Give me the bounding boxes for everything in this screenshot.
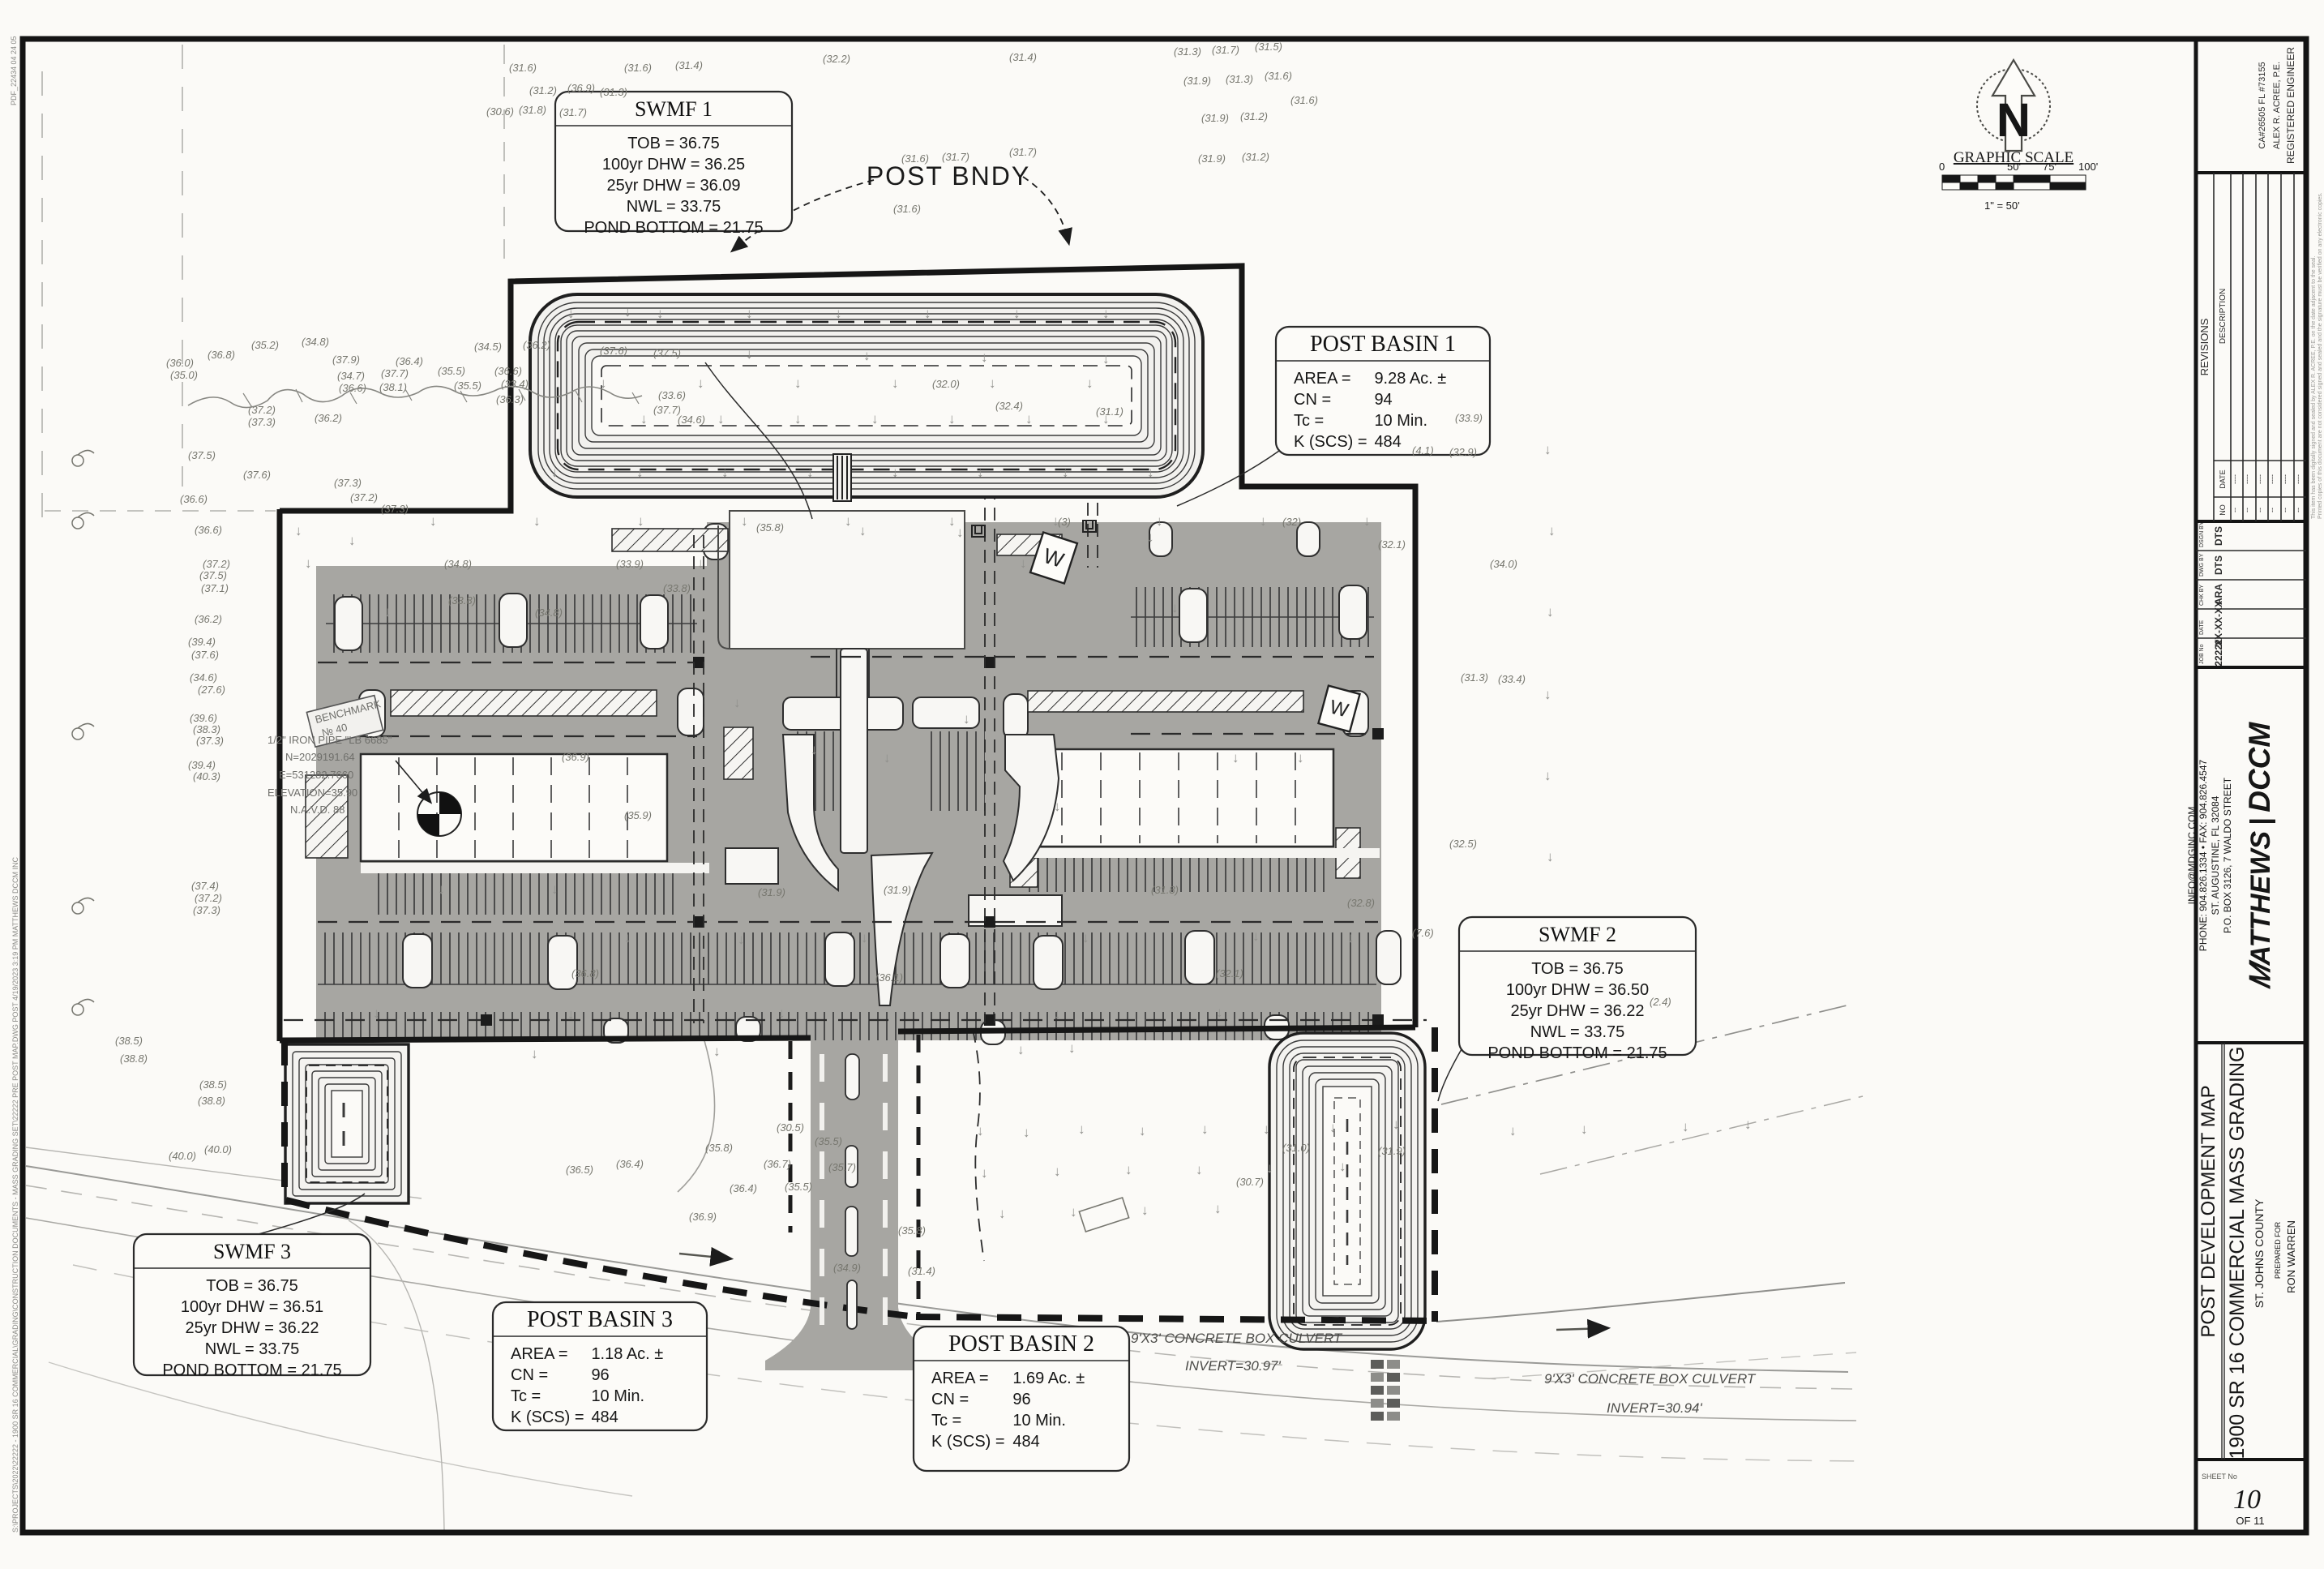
- svg-text:(37.7): (37.7): [381, 367, 409, 379]
- svg-text:↓: ↓: [1329, 1120, 1337, 1135]
- svg-text:↓: ↓: [811, 742, 818, 757]
- svg-text:↓: ↓: [1125, 1162, 1132, 1177]
- svg-text:(37.3): (37.3): [248, 416, 276, 428]
- svg-text:ELEVATION=35.90: ELEVATION=35.90: [267, 787, 357, 799]
- svg-text:↓: ↓: [861, 930, 868, 945]
- svg-text:(32.5): (32.5): [1449, 838, 1477, 850]
- svg-text:(38.3): (38.3): [193, 723, 220, 735]
- svg-text:(37.6): (37.6): [600, 345, 627, 357]
- svg-text:22222: 22222: [2213, 639, 2224, 667]
- svg-text:(38.8): (38.8): [120, 1052, 148, 1065]
- svg-text:(37.5): (37.5): [188, 449, 216, 461]
- svg-text:↓: ↓: [778, 1005, 785, 1021]
- svg-text:(31.4): (31.4): [675, 59, 703, 71]
- svg-text:(37.5): (37.5): [653, 347, 681, 359]
- svg-text:(31.9): (31.9): [1201, 112, 1229, 124]
- svg-text:CA#26505 FL #73155: CA#26505 FL #73155: [2258, 62, 2267, 148]
- svg-text:CN =: CN =: [1294, 391, 1331, 409]
- svg-text:↓: ↓: [871, 411, 879, 427]
- svg-text:(40.0): (40.0): [204, 1143, 232, 1155]
- svg-text:(4.1): (4.1): [1412, 444, 1434, 457]
- svg-text:(35.8): (35.8): [756, 521, 784, 534]
- svg-text:N.A.V.D. 88: N.A.V.D. 88: [290, 804, 345, 816]
- svg-text:--: --: [2243, 508, 2251, 512]
- svg-text:RON WARREN: RON WARREN: [2285, 1220, 2297, 1293]
- svg-text:(37.5): (37.5): [199, 569, 227, 581]
- svg-text:(31.6): (31.6): [1265, 70, 1292, 82]
- svg-text:(3): (3): [1058, 516, 1071, 528]
- svg-text:PREPARED FOR: PREPARED FOR: [2274, 1221, 2282, 1279]
- svg-text:↓: ↓: [1216, 1005, 1223, 1020]
- svg-text:NWL = 33.75: NWL = 33.75: [1530, 1023, 1625, 1041]
- svg-text:↓: ↓: [1052, 513, 1059, 529]
- svg-text:----: ----: [2231, 474, 2239, 484]
- svg-text:(36.6): (36.6): [494, 365, 522, 377]
- svg-text:(33.4): (33.4): [1498, 673, 1526, 685]
- svg-text:(31.3): (31.3): [600, 86, 627, 98]
- svg-text:(31.7): (31.7): [1212, 44, 1239, 56]
- svg-text:(31.2): (31.2): [529, 84, 557, 96]
- svg-text:(35.5): (35.5): [815, 1135, 842, 1147]
- svg-text:↓: ↓: [948, 411, 956, 427]
- svg-text:(33.9): (33.9): [1455, 412, 1483, 424]
- svg-text:↓: ↓: [835, 306, 842, 321]
- svg-text:(30.7): (30.7): [1236, 1176, 1264, 1188]
- svg-text:(37.2): (37.2): [248, 404, 276, 416]
- svg-text:(39.6): (39.6): [190, 712, 217, 724]
- svg-text:POND BOTTOM = 21.75: POND BOTTOM = 21.75: [1487, 1044, 1667, 1062]
- svg-text:(36.6): (36.6): [180, 493, 208, 505]
- svg-text:↓: ↓: [1082, 930, 1089, 945]
- svg-text:(36.2): (36.2): [315, 412, 342, 424]
- svg-text:P.O. BOX 3126, 7 WALDO STREET: P.O. BOX 3126, 7 WALDO STREET: [2222, 777, 2233, 933]
- svg-text:(30.6): (30.6): [486, 105, 514, 118]
- svg-text:(34.8): (34.8): [302, 336, 329, 348]
- svg-text:↓: ↓: [1214, 1201, 1222, 1216]
- svg-text:REGISTERED ENGINEER: REGISTERED ENGINEER: [2285, 47, 2296, 164]
- svg-text:NWL = 33.75: NWL = 33.75: [627, 198, 721, 216]
- svg-text:↓: ↓: [1025, 411, 1033, 427]
- svg-text:----: ----: [2256, 474, 2264, 484]
- svg-text:↓: ↓: [863, 348, 871, 363]
- svg-text:(36.0): (36.0): [166, 357, 194, 369]
- svg-text:(31.3): (31.3): [1461, 671, 1488, 684]
- svg-text:TOB = 36.75: TOB = 36.75: [1531, 960, 1624, 978]
- svg-text:↓: ↓: [713, 1044, 721, 1059]
- svg-text:↓: ↓: [697, 555, 704, 571]
- svg-text:↓: ↓: [1013, 306, 1021, 321]
- svg-text:(36.7): (36.7): [764, 1158, 791, 1170]
- svg-text:NO: NO: [2219, 504, 2227, 516]
- svg-text:484: 484: [1374, 433, 1401, 451]
- svg-text:(34.8): (34.8): [444, 558, 472, 570]
- svg-text:↓: ↓: [807, 465, 814, 480]
- svg-text:(38.5): (38.5): [199, 1078, 227, 1091]
- svg-text:(31.6): (31.6): [509, 62, 537, 74]
- svg-text:PDF_22434 04 24 05: PDF_22434 04 24 05: [10, 36, 18, 105]
- svg-text:↓: ↓: [1544, 442, 1551, 457]
- svg-text:Printed copies of this documen: Printed copies of this document are not …: [2318, 192, 2323, 519]
- svg-text:96: 96: [591, 1366, 609, 1384]
- svg-text:(38.1): (38.1): [379, 381, 407, 393]
- svg-text:↓: ↓: [430, 513, 437, 529]
- svg-text:(40.3): (40.3): [193, 770, 220, 782]
- svg-text:↓: ↓: [1347, 930, 1355, 945]
- svg-text:(37.3): (37.3): [196, 735, 224, 747]
- svg-text:↓: ↓: [1266, 1160, 1273, 1176]
- svg-text:↓: ↓: [794, 375, 802, 391]
- svg-text:↓: ↓: [981, 1165, 988, 1181]
- svg-text:DTS: DTS: [2213, 526, 2224, 546]
- svg-text:(36.6): (36.6): [195, 524, 222, 536]
- svg-text:(36.2): (36.2): [523, 339, 550, 351]
- svg-text:↓: ↓: [295, 523, 302, 538]
- svg-text:(36.9): (36.9): [689, 1211, 717, 1223]
- svg-text:25yr DHW = 36.09: 25yr DHW = 36.09: [606, 177, 740, 195]
- svg-text:(37.3): (37.3): [334, 477, 362, 489]
- svg-text:↓: ↓: [305, 555, 312, 571]
- svg-text:↓: ↓: [734, 695, 741, 710]
- svg-text:96: 96: [1012, 1391, 1030, 1408]
- svg-text:100yr DHW = 36.50: 100yr DHW = 36.50: [1506, 981, 1649, 999]
- svg-text:↓: ↓: [657, 306, 664, 321]
- svg-text:(35.8): (35.8): [705, 1142, 733, 1154]
- svg-text:9.28 Ac. ±: 9.28 Ac. ±: [1374, 370, 1446, 388]
- svg-text:1/2" IRON PIPE "LB 6685": 1/2" IRON PIPE "LB 6685": [267, 734, 392, 746]
- svg-text:100yr DHW = 36.51: 100yr DHW = 36.51: [181, 1298, 323, 1316]
- svg-text:↓: ↓: [892, 375, 899, 391]
- svg-text:↓: ↓: [977, 1123, 984, 1138]
- svg-text:↓: ↓: [746, 346, 753, 362]
- svg-text:↓: ↓: [1263, 1121, 1270, 1137]
- svg-text:(35.9): (35.9): [624, 809, 652, 821]
- svg-text:----: ----: [2243, 474, 2251, 484]
- svg-text:DESCRIPTION: DESCRIPTION: [2219, 289, 2228, 344]
- svg-text:↓: ↓: [384, 604, 392, 619]
- svg-text:(31.7): (31.7): [559, 106, 587, 118]
- svg-text:(31.1): (31.1): [1096, 405, 1123, 418]
- svg-text:REVISIONS: REVISIONS: [2198, 318, 2211, 375]
- svg-text:--: --: [2268, 508, 2276, 512]
- svg-text:(32.1): (32.1): [1378, 538, 1406, 551]
- svg-text:Tc =: Tc =: [511, 1387, 541, 1405]
- svg-text:INVERT=30.94': INVERT=30.94': [1607, 1400, 1703, 1416]
- svg-text:↓: ↓: [989, 375, 996, 391]
- svg-text:↓: ↓: [567, 1006, 575, 1022]
- svg-text:POND BOTTOM = 21.75: POND BOTTOM = 21.75: [584, 219, 763, 237]
- svg-text:↓: ↓: [533, 513, 541, 529]
- svg-text:(35.2): (35.2): [251, 339, 279, 351]
- svg-text:(32.0): (32.0): [932, 378, 960, 390]
- svg-text:(31.4): (31.4): [908, 1265, 935, 1277]
- svg-text:INVERT=30.97': INVERT=30.97': [1185, 1358, 1282, 1374]
- svg-text:(31.3): (31.3): [1174, 45, 1201, 58]
- svg-text:(31.3): (31.3): [1226, 73, 1253, 85]
- svg-text:↓: ↓: [1682, 1119, 1689, 1134]
- svg-text:↓: ↓: [845, 513, 852, 529]
- svg-text:(31.9): (31.9): [884, 884, 911, 896]
- svg-text:POST BASIN 1: POST BASIN 1: [1310, 332, 1456, 357]
- svg-text:(31.6): (31.6): [1290, 94, 1318, 106]
- svg-text:↓: ↓: [1547, 849, 1554, 864]
- svg-text:↓: ↓: [551, 465, 559, 480]
- svg-text:1.69 Ac. ±: 1.69 Ac. ±: [1012, 1370, 1085, 1387]
- svg-text:--: --: [2256, 508, 2264, 512]
- svg-text:SWMF 3: SWMF 3: [213, 1240, 291, 1263]
- svg-text:↓: ↓: [1147, 465, 1154, 480]
- svg-text:(34.9): (34.9): [833, 1262, 861, 1274]
- svg-text:(39.4): (39.4): [188, 759, 216, 771]
- svg-text:↓: ↓: [1086, 375, 1094, 391]
- svg-text:ST. AUGUSTINE, FL 32084: ST. AUGUSTINE, FL 32084: [2210, 795, 2221, 915]
- svg-text:↓: ↓: [1102, 306, 1110, 321]
- svg-text:JOB No: JOB No: [2199, 644, 2205, 664]
- svg-text:(34.6): (34.6): [678, 414, 705, 426]
- svg-text:(37.3): (37.3): [193, 904, 220, 916]
- svg-text:----: ----: [2281, 474, 2289, 484]
- svg-text:DSGN BY: DSGN BY: [2199, 521, 2205, 547]
- svg-text:NWL = 33.75: NWL = 33.75: [205, 1340, 300, 1358]
- svg-text:INFO@MDGINC.COM: INFO@MDGINC.COM: [2186, 807, 2198, 905]
- svg-text:↓: ↓: [1102, 351, 1110, 367]
- svg-text:TOB = 36.75: TOB = 36.75: [206, 1277, 298, 1295]
- svg-text:↓: ↓: [1260, 513, 1267, 529]
- svg-text:↓: ↓: [697, 375, 704, 391]
- svg-text:↓: ↓: [981, 349, 988, 365]
- svg-text:(31.2): (31.2): [1242, 151, 1269, 163]
- svg-text:(37.2): (37.2): [203, 558, 230, 570]
- svg-text:(36.9): (36.9): [567, 82, 595, 94]
- svg-text:↓: ↓: [1509, 1123, 1517, 1138]
- svg-text:(2.4): (2.4): [1650, 996, 1671, 1008]
- svg-text:0: 0: [1939, 161, 1945, 173]
- svg-text:(36.8): (36.8): [208, 349, 235, 361]
- svg-text:10 Min.: 10 Min.: [591, 1387, 644, 1405]
- svg-text:↓: ↓: [1156, 513, 1163, 529]
- svg-text:↓: ↓: [1393, 1117, 1400, 1132]
- svg-text:----: ----: [2294, 474, 2302, 484]
- svg-text:(34.0): (34.0): [1490, 558, 1517, 570]
- svg-text:↓: ↓: [924, 306, 931, 321]
- svg-text:↓: ↓: [884, 750, 891, 765]
- svg-text:↓: ↓: [717, 411, 725, 427]
- svg-text:(31.8): (31.8): [519, 104, 546, 116]
- svg-text:DATE: DATE: [2219, 469, 2227, 488]
- svg-text:(31.9): (31.9): [758, 886, 785, 898]
- svg-text:(36.4): (36.4): [730, 1182, 757, 1194]
- svg-text:1" = 50': 1" = 50': [1984, 199, 2020, 212]
- svg-text:94: 94: [1374, 391, 1392, 409]
- svg-text:1900 SR 16 COMMERCIAL MASS GRA: 1900 SR 16 COMMERCIAL MASS GRADING: [2226, 1047, 2249, 1460]
- svg-text:↓: ↓: [636, 465, 644, 480]
- svg-text:10 Min.: 10 Min.: [1374, 412, 1427, 430]
- svg-text:↓: ↓: [1548, 523, 1556, 538]
- svg-text:↓: ↓: [1070, 1204, 1077, 1220]
- svg-text:(37.2): (37.2): [350, 491, 378, 504]
- svg-text:↓: ↓: [1232, 750, 1239, 765]
- svg-text:DATE: DATE: [2199, 620, 2205, 635]
- svg-text:(31.7): (31.7): [1009, 146, 1037, 158]
- svg-text:S:\PROJECTS\2022\22222 - 1900: S:\PROJECTS\2022\22222 - 1900 SR 16 COMM…: [11, 856, 19, 1533]
- svg-text:↓: ↓: [1078, 1121, 1085, 1137]
- svg-text:POST DEVELOPMENT MAP: POST DEVELOPMENT MAP: [2198, 1085, 2219, 1337]
- svg-text:↓: ↓: [1744, 1117, 1752, 1132]
- svg-text:PHONE: 904.826.1334 • FAX: 904: PHONE: 904.826.1334 • FAX: 904.826.4547: [2198, 759, 2209, 951]
- svg-text:100yr DHW = 36.25: 100yr DHW = 36.25: [602, 156, 745, 174]
- svg-text:(36.2): (36.2): [195, 613, 222, 625]
- svg-text:(37.9): (37.9): [332, 354, 360, 366]
- svg-text:↓: ↓: [624, 304, 631, 319]
- svg-text:↓: ↓: [859, 523, 867, 538]
- svg-text:POND BOTTOM = 21.75: POND BOTTOM = 21.75: [162, 1361, 341, 1379]
- svg-text:(40.0): (40.0): [169, 1150, 196, 1162]
- svg-text:(36.4): (36.4): [396, 355, 423, 367]
- svg-text:(30.5): (30.5): [777, 1121, 804, 1134]
- svg-text:↓: ↓: [1581, 1121, 1588, 1137]
- svg-text:↓: ↓: [741, 513, 748, 529]
- svg-text:(32): (32): [1282, 516, 1301, 528]
- svg-text:10 Min.: 10 Min.: [1012, 1412, 1066, 1430]
- svg-text:(31.0): (31.0): [1282, 1142, 1310, 1154]
- svg-text:(32.2): (32.2): [823, 53, 850, 65]
- svg-text:(31.5): (31.5): [1255, 41, 1282, 53]
- svg-text:(32.4): (32.4): [995, 400, 1023, 412]
- svg-text:↓: ↓: [1141, 1202, 1149, 1218]
- svg-text:↓: ↓: [531, 1046, 538, 1061]
- svg-text:75': 75': [2043, 161, 2057, 173]
- svg-text:ALEX R. ACREE, P.E.: ALEX R. ACREE, P.E.: [2272, 62, 2282, 149]
- svg-text:↓: ↓: [373, 1005, 380, 1021]
- svg-text:ST. JOHNS COUNTY: ST. JOHNS COUNTY: [2253, 1198, 2266, 1308]
- svg-text:OF 11: OF 11: [2236, 1515, 2264, 1527]
- svg-text:↓: ↓: [738, 932, 745, 947]
- svg-text:9'X3' CONCRETE BOX CULVERT: 9'X3' CONCRETE BOX CULVERT: [1131, 1331, 1343, 1346]
- svg-text:(37.1): (37.1): [201, 582, 229, 594]
- svg-text:↓: ↓: [1171, 600, 1179, 615]
- svg-text:(36.5): (36.5): [566, 1164, 593, 1176]
- svg-text:(31.9): (31.9): [1198, 152, 1226, 165]
- svg-text:--: --: [2281, 508, 2289, 512]
- svg-text:↓: ↓: [957, 525, 964, 540]
- svg-text:(32.8): (32.8): [1347, 897, 1375, 909]
- svg-text:(31.6): (31.6): [624, 62, 652, 74]
- svg-text:↓: ↓: [1054, 1006, 1061, 1022]
- svg-text:POST BASIN 3: POST BASIN 3: [527, 1307, 673, 1332]
- svg-text:10: 10: [2233, 1485, 2261, 1515]
- svg-text:(36.3): (36.3): [496, 393, 524, 405]
- svg-text:↓: ↓: [721, 465, 729, 480]
- svg-text:↓: ↓: [1017, 1042, 1025, 1057]
- svg-text:----: ----: [2268, 474, 2276, 484]
- svg-text:(38.8): (38.8): [198, 1095, 225, 1107]
- svg-text:(34.7): (34.7): [337, 370, 365, 382]
- svg-text:↓: ↓: [1147, 529, 1154, 545]
- svg-text:AREA =: AREA =: [511, 1345, 568, 1363]
- svg-text:↓: ↓: [1054, 799, 1061, 814]
- svg-text:(35.0): (35.0): [170, 369, 198, 381]
- svg-text:(35.5): (35.5): [438, 365, 465, 377]
- svg-text:𝑀ATTHEWS | DCCM: 𝑀ATTHEWS | DCCM: [2243, 722, 2276, 990]
- svg-text:(7.6): (7.6): [1412, 927, 1434, 939]
- svg-text:(35.8): (35.8): [898, 1224, 926, 1237]
- svg-text:(33.9): (33.9): [616, 558, 644, 570]
- svg-text:↓: ↓: [1102, 411, 1110, 427]
- svg-text:CN =: CN =: [931, 1391, 969, 1408]
- svg-text:(31.8): (31.8): [1151, 884, 1179, 896]
- svg-text:(31.9): (31.9): [1378, 1145, 1406, 1157]
- svg-text:(31.6): (31.6): [893, 203, 921, 215]
- svg-text:(38.5): (38.5): [115, 1035, 143, 1047]
- svg-text:↓: ↓: [948, 513, 956, 529]
- svg-text:25yr DHW = 36.22: 25yr DHW = 36.22: [1510, 1002, 1644, 1020]
- svg-text:DWG BY: DWG BY: [2199, 553, 2205, 577]
- svg-text:↓: ↓: [551, 881, 559, 897]
- svg-text:↓: ↓: [1544, 768, 1551, 783]
- svg-text:(34.6): (34.6): [190, 671, 217, 684]
- svg-text:↓: ↓: [1196, 1162, 1203, 1177]
- svg-text:100': 100': [2078, 161, 2098, 173]
- svg-text:484: 484: [591, 1408, 618, 1426]
- svg-text:(31.2): (31.2): [1240, 110, 1268, 122]
- svg-text:↓: ↓: [624, 930, 631, 945]
- svg-text:↓: ↓: [746, 306, 753, 321]
- svg-text:(33.8): (33.8): [448, 594, 476, 607]
- svg-text:9'X3' CONCRETE BOX CULVERT: 9'X3' CONCRETE BOX CULVERT: [1544, 1371, 1757, 1387]
- svg-text:25yr DHW = 36.22: 25yr DHW = 36.22: [185, 1319, 319, 1337]
- svg-text:↓: ↓: [349, 533, 356, 548]
- svg-text:↓: ↓: [1339, 1159, 1346, 1174]
- svg-text:Tc =: Tc =: [931, 1412, 961, 1430]
- svg-text:(37.2): (37.2): [195, 892, 222, 904]
- svg-text:(31.9): (31.9): [1183, 75, 1211, 87]
- svg-text:↓: ↓: [637, 513, 644, 529]
- svg-text:↓: ↓: [567, 306, 575, 321]
- svg-text:(37.7): (37.7): [653, 404, 681, 416]
- svg-text:(37.3): (37.3): [381, 503, 409, 515]
- svg-text:--: --: [2294, 508, 2302, 512]
- svg-text:(36.9): (36.9): [562, 751, 589, 763]
- svg-text:N: N: [1997, 94, 2031, 147]
- svg-text:↓: ↓: [977, 465, 984, 480]
- svg-text:(35.7): (35.7): [828, 1161, 856, 1173]
- svg-text:↓: ↓: [1201, 1121, 1209, 1137]
- svg-text:AREA =: AREA =: [931, 1370, 989, 1387]
- svg-text:SWMF 2: SWMF 2: [1539, 923, 1616, 946]
- svg-text:↓: ↓: [999, 1206, 1006, 1221]
- svg-text:Tc =: Tc =: [1294, 412, 1324, 430]
- svg-text:(39.4): (39.4): [188, 636, 216, 648]
- svg-text:↓: ↓: [640, 411, 648, 427]
- svg-text:N=2029191.64: N=2029191.64: [285, 751, 355, 763]
- svg-text:K (SCS) =: K (SCS) =: [931, 1433, 1005, 1451]
- svg-text:↓: ↓: [1252, 928, 1260, 944]
- svg-text:↓: ↓: [963, 711, 970, 727]
- svg-text:50': 50': [2007, 161, 2021, 173]
- svg-text:K (SCS) =: K (SCS) =: [1294, 433, 1367, 451]
- svg-text:E=531282.7660: E=531282.7660: [279, 769, 353, 781]
- svg-text:(27.6): (27.6): [198, 684, 225, 696]
- svg-text:↓: ↓: [1544, 687, 1551, 702]
- svg-text:K (SCS) =: K (SCS) =: [511, 1408, 584, 1426]
- svg-text:(36.4): (36.4): [616, 1158, 644, 1170]
- svg-text:(34.8): (34.8): [535, 607, 563, 619]
- svg-text:(36.8): (36.8): [571, 967, 599, 980]
- svg-text:TOB = 36.75: TOB = 36.75: [627, 135, 720, 152]
- svg-text:↓: ↓: [1054, 1164, 1061, 1179]
- svg-text:↓: ↓: [1547, 604, 1554, 619]
- svg-text:--: --: [2231, 508, 2239, 512]
- svg-text:(31.7): (31.7): [942, 151, 969, 163]
